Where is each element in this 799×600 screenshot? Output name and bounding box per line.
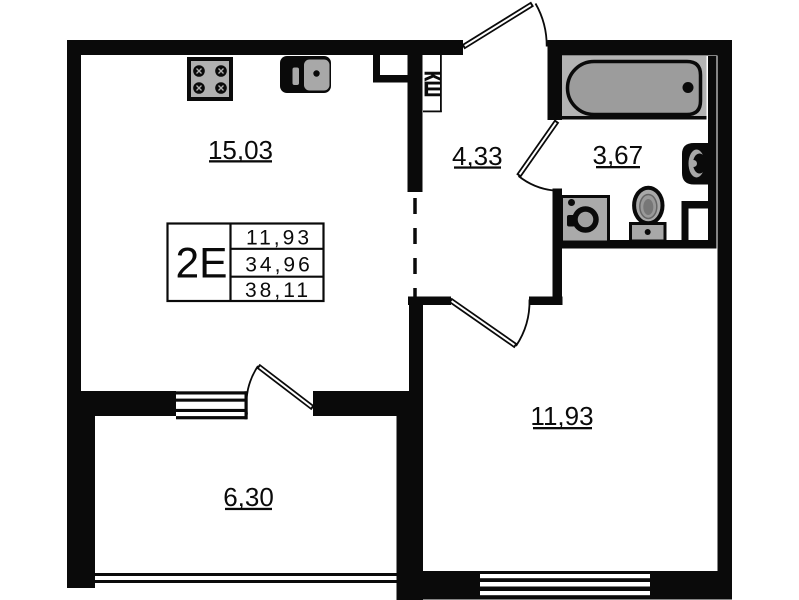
svg-text:2Е: 2Е (176, 241, 228, 288)
svg-text:КШ: КШ (420, 71, 445, 97)
svg-text:6,30: 6,30 (223, 482, 274, 512)
svg-text:11,93: 11,93 (530, 401, 593, 431)
svg-text:11,93: 11,93 (246, 227, 312, 250)
svg-text:38,11: 38,11 (245, 279, 311, 302)
svg-text:3,67: 3,67 (592, 140, 643, 170)
svg-text:34,96: 34,96 (245, 254, 313, 277)
